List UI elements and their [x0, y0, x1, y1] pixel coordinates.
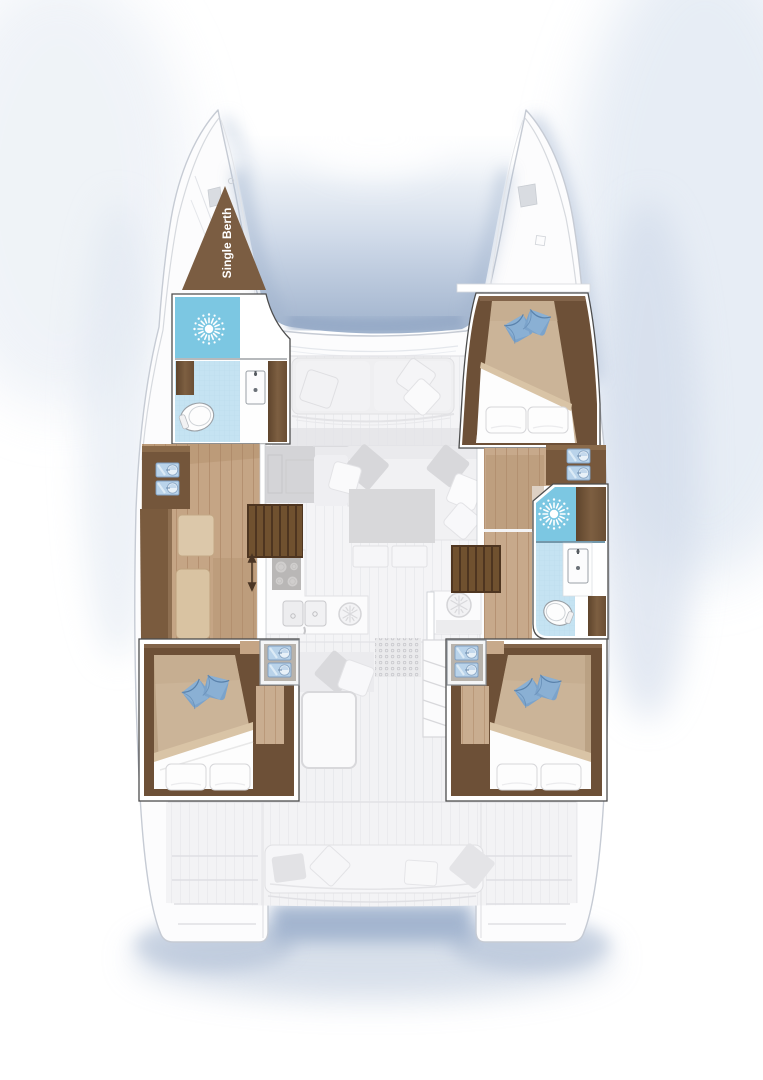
svg-text:Single Berth: Single Berth	[220, 208, 234, 279]
